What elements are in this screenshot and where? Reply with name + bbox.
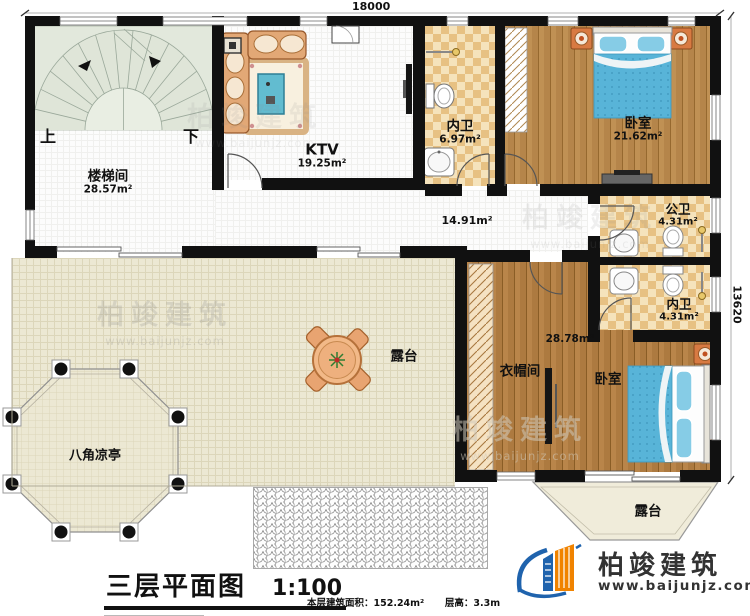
sink bbox=[428, 152, 450, 172]
dimension-right: 13620 bbox=[731, 285, 744, 323]
label-pavilion: 八角凉亭 bbox=[69, 450, 121, 465]
label-bath-top: 内卫 6.97m² bbox=[439, 120, 480, 147]
dimension-top: 18000 bbox=[352, 0, 390, 13]
label-bath-right: 内卫 4.31m² bbox=[659, 297, 698, 322]
toilet-tank bbox=[426, 84, 434, 108]
label-corridor-area: 14.91m² bbox=[441, 215, 492, 227]
toilet-tank bbox=[663, 248, 683, 256]
sink bbox=[614, 234, 634, 252]
pillow bbox=[637, 36, 665, 52]
label-bedroom-bottom: 卧室 bbox=[595, 372, 622, 387]
bed-bottom bbox=[628, 365, 710, 463]
terrace-bay-shape bbox=[533, 482, 718, 540]
label-stair-room: 楼梯间 28.57m² bbox=[84, 170, 133, 197]
label-cloakroom: 衣帽间 bbox=[500, 364, 541, 379]
logo-site: www.baijunjz.com bbox=[598, 578, 750, 594]
cloakroom-wardrobe bbox=[469, 264, 493, 470]
plan-vector-overlay bbox=[0, 0, 750, 616]
label-bedroom-top: 卧室 21.62m² bbox=[614, 117, 663, 144]
bedroom-top-furniture bbox=[571, 27, 692, 184]
tv bbox=[614, 170, 640, 175]
sink bbox=[614, 272, 634, 290]
coffee-table bbox=[258, 74, 284, 114]
door-bath-top bbox=[457, 154, 489, 186]
label-terrace-bay: 露台 bbox=[635, 504, 662, 519]
door-bath-right bbox=[599, 298, 631, 330]
bed-top bbox=[593, 27, 672, 118]
toilet-tank bbox=[663, 266, 683, 274]
floorplan-page: 柏竣建筑 www.baijunjz.com 柏竣建筑 www.baijunjz.… bbox=[0, 0, 750, 616]
company-logo: 柏竣建筑 www.baijunjz.com bbox=[514, 541, 746, 603]
title-info: 本层建筑面积：152.24m² 层高：3.3m bbox=[307, 595, 500, 609]
pillow bbox=[676, 418, 692, 458]
tv-console bbox=[602, 174, 652, 184]
pillow bbox=[599, 36, 627, 52]
label-stair-down: 下 bbox=[183, 128, 199, 146]
bath-right-fixtures bbox=[610, 266, 706, 300]
page-title: 三层平面图 bbox=[106, 566, 246, 603]
door-ktv bbox=[228, 154, 262, 188]
label-ktv: KTV 19.25m² bbox=[298, 142, 347, 171]
label-terrace-main: 露台 bbox=[391, 349, 418, 364]
ktv-tv bbox=[403, 64, 412, 114]
staircase bbox=[33, 26, 214, 130]
label-public-bath: 公卫 4.31m² bbox=[658, 202, 697, 227]
ktv-sofa-set bbox=[221, 31, 306, 133]
title-area-info: 本层建筑面积：152.24m² bbox=[307, 598, 424, 609]
bedroom-bottom-furniture bbox=[545, 344, 716, 463]
bedroom-bottom-tv bbox=[545, 368, 557, 444]
door-bedroom-top bbox=[505, 154, 537, 186]
logo-name: 柏竣建筑 bbox=[598, 545, 722, 582]
pillow bbox=[676, 371, 692, 411]
title-height-info: 层高：3.3m bbox=[445, 598, 500, 609]
bath-top-fixtures bbox=[424, 49, 460, 177]
wall-niche bbox=[332, 26, 359, 43]
label-bedroom-bottom-area: 28.78m² bbox=[546, 334, 595, 346]
bedroom-top-wardrobe bbox=[505, 28, 527, 132]
terrace-table-set bbox=[283, 306, 392, 415]
door-bedroom-bottom bbox=[530, 262, 562, 294]
table-plant bbox=[329, 352, 345, 368]
label-stair-up: 上 bbox=[40, 128, 56, 146]
